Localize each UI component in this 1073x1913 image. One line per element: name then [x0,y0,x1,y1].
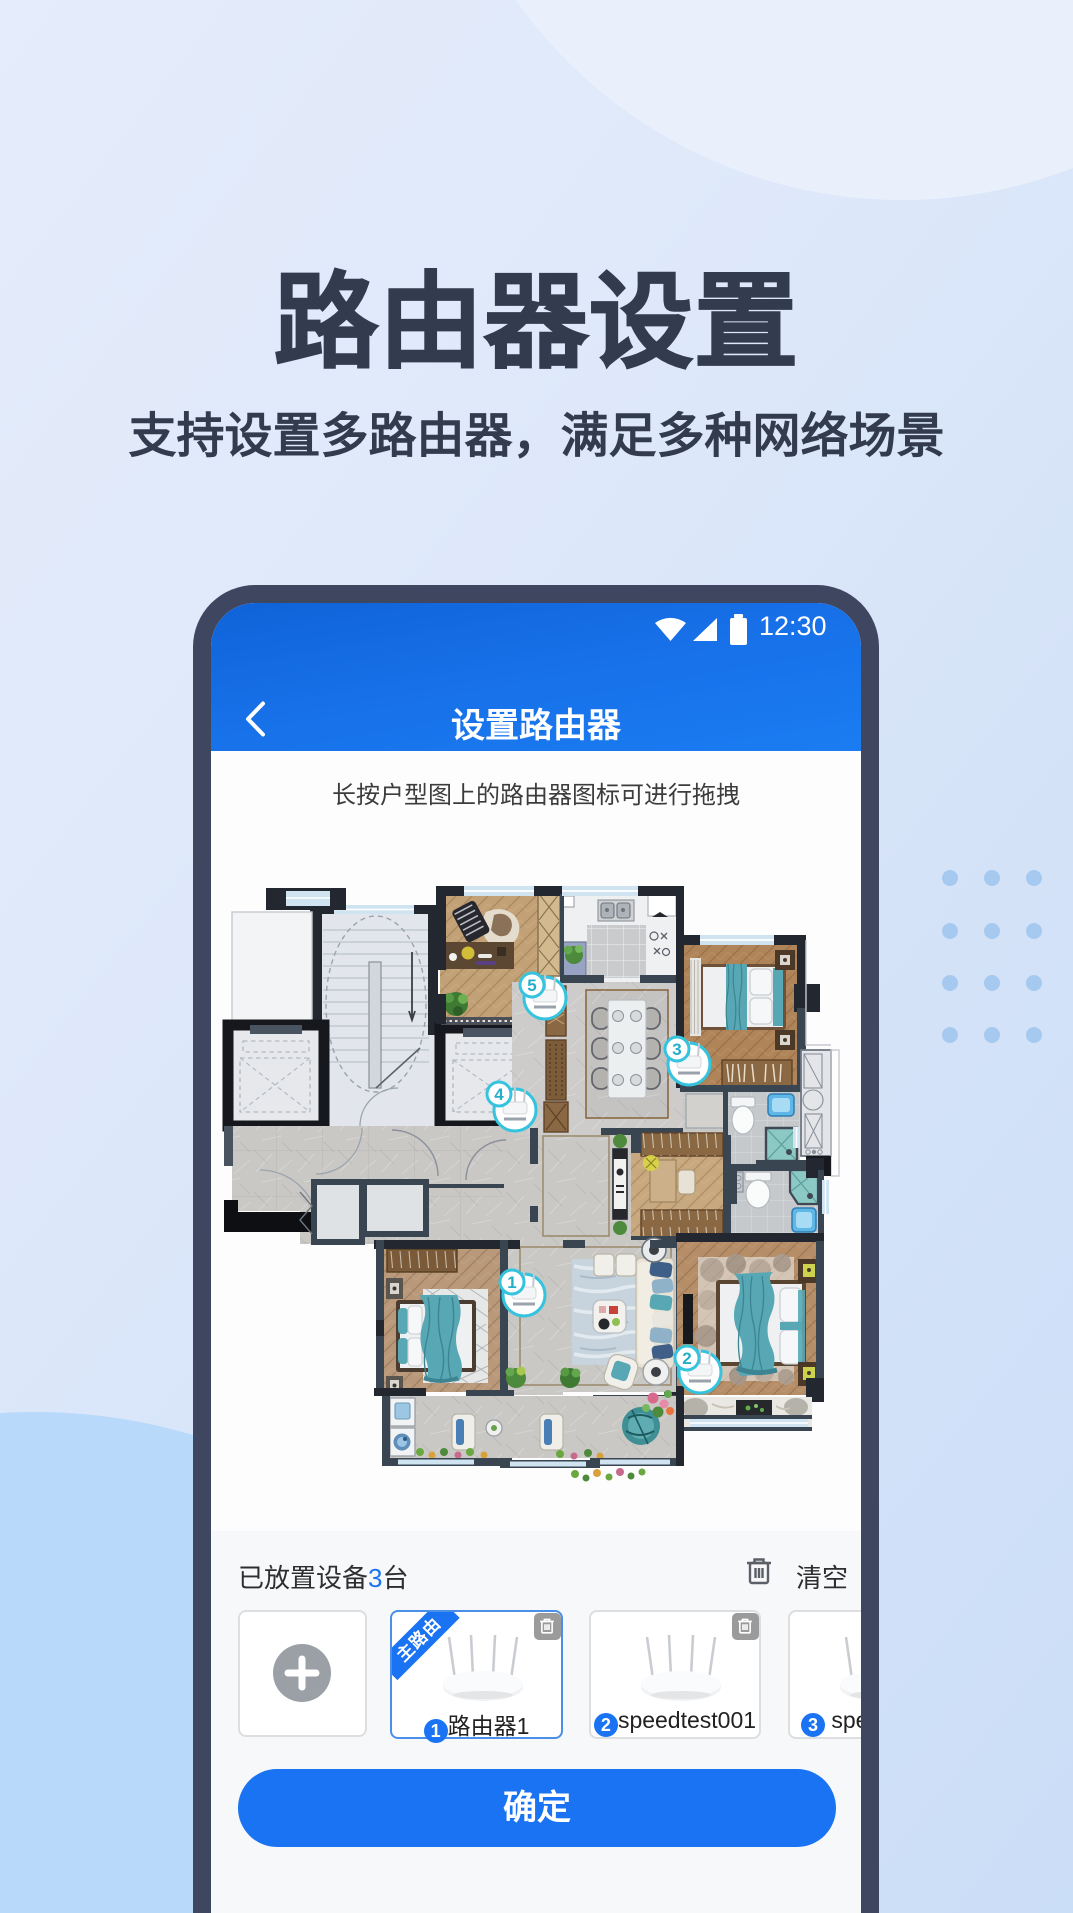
svg-text:1: 1 [507,1273,516,1292]
svg-text:4: 4 [494,1085,504,1104]
svg-text:5: 5 [527,976,536,995]
svg-text:2: 2 [682,1349,691,1368]
svg-text:3: 3 [672,1040,681,1059]
